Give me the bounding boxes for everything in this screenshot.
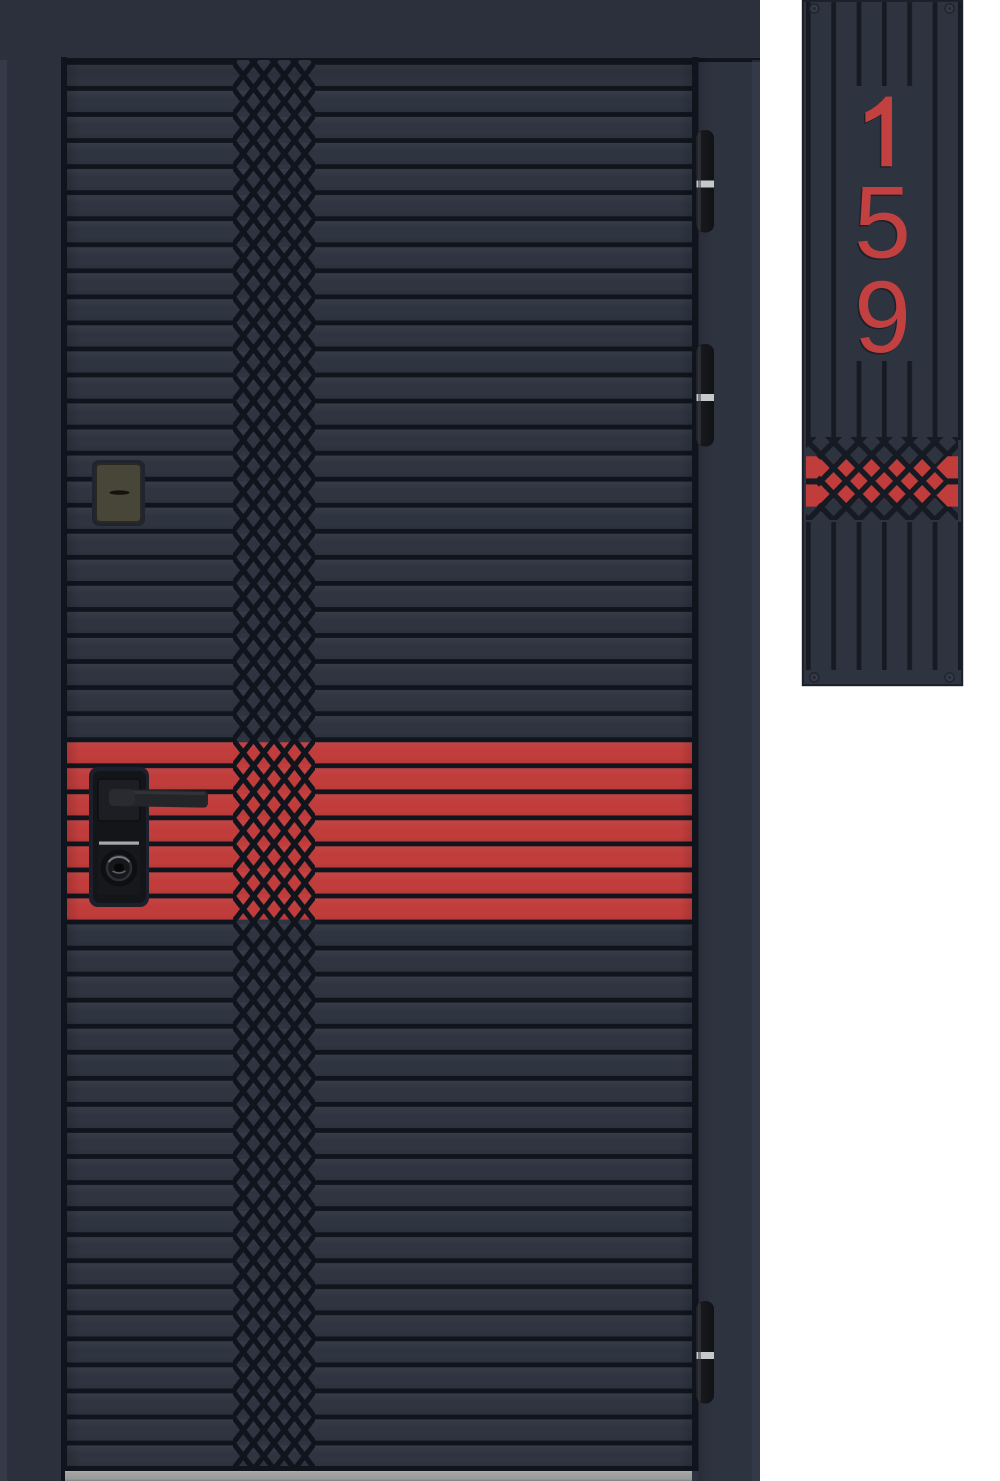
svg-text:9: 9 — [854, 260, 911, 374]
